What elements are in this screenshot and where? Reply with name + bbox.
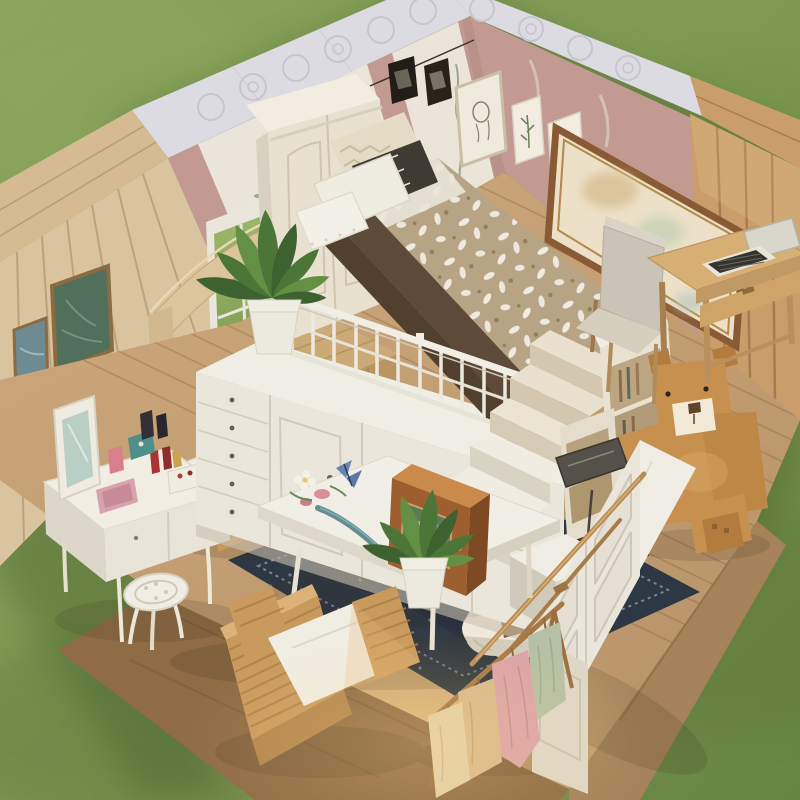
isometric-room-scene: [0, 0, 800, 800]
game-viewport: [0, 0, 800, 800]
vanity-mirror: [54, 396, 100, 500]
portrait-sketch[interactable]: [456, 72, 506, 166]
